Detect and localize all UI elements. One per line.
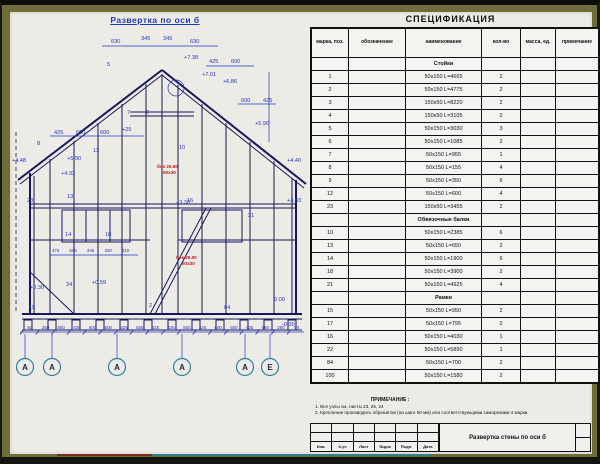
table-cell: 21 <box>311 279 349 292</box>
dim-label: 425 <box>263 98 272 104</box>
table-cell <box>556 292 600 305</box>
table-row: 1250х150 L=6004 <box>311 188 599 201</box>
table-cell: Рамки <box>406 292 482 305</box>
dim-label: +4.48 <box>12 158 26 164</box>
title-block-cell <box>311 424 332 433</box>
table-cell: 4 <box>311 110 349 123</box>
table-cell <box>349 201 406 214</box>
svg-text:А: А <box>49 363 55 372</box>
table-row: 750х150 L=9551 <box>311 149 599 162</box>
table-cell: 17 <box>311 318 349 331</box>
col-header-pos: марка, поз. <box>311 28 349 58</box>
table-cell: 8 <box>311 162 349 175</box>
table-cell: 2 <box>482 266 521 279</box>
table-cell: 50х150 L=155 <box>406 162 482 175</box>
dim-label: 84 <box>224 305 230 311</box>
table-row: 1350х150 L=6502 <box>311 240 599 253</box>
table-row: 8450х150 L=7002 <box>311 357 599 370</box>
title-block-cell <box>396 424 417 433</box>
table-cell: 50х150 L=4030 <box>406 331 482 344</box>
table-cell <box>556 266 600 279</box>
spec-table: марка, поз. обозначение наименование кол… <box>310 27 600 384</box>
dim-label: 600 <box>231 59 240 65</box>
dim-label: 0.00 <box>274 297 285 303</box>
dim-label: 320 <box>105 248 113 253</box>
table-cell: 7 <box>311 149 349 162</box>
dim-label: +5.90 <box>255 121 269 127</box>
table-cell: 2 <box>482 305 521 318</box>
dim-label: 425 <box>167 325 175 330</box>
table-cell: 6 <box>311 136 349 149</box>
table-cell <box>311 292 349 305</box>
table-cell: 16 <box>311 331 349 344</box>
note-line: 2. Крепление производить обрешётки (на ш… <box>315 410 591 415</box>
table-cell: 6 <box>482 253 521 266</box>
table-cell: 9 <box>311 175 349 188</box>
table-row: 1550х150 L=9502 <box>311 305 599 318</box>
dim-label: +7.38 <box>184 55 198 61</box>
notes-block: ПРИМЕЧАНИЕ : 1. Все узлы см. листы 23, 2… <box>315 397 591 415</box>
dim-label: 550 <box>183 325 191 330</box>
table-cell <box>556 188 600 201</box>
title-block-label: Подп. <box>396 442 417 451</box>
col-header-qty: кол-во <box>482 28 521 58</box>
dim-label: 600 <box>241 98 250 104</box>
table-cell: 50х150 L=4925 <box>406 279 482 292</box>
dim-label: +0.30 <box>30 285 44 291</box>
table-cell: 3 <box>311 97 349 110</box>
table-cell: 2 <box>482 84 521 97</box>
title-block-cell <box>375 424 396 433</box>
dim-label: 600 <box>100 130 109 136</box>
table-cell: 12 <box>311 188 349 201</box>
table-cell <box>349 266 406 279</box>
dim-label: +0.59 <box>92 280 106 286</box>
title-block-cell <box>354 424 375 433</box>
dim-label: 600 <box>76 130 85 136</box>
title-block-cell <box>311 433 332 442</box>
dim-label: 630 <box>190 39 199 45</box>
table-cell <box>556 58 600 71</box>
dim-label: 425 <box>54 130 63 136</box>
table-cell <box>556 227 600 240</box>
table-cell: 50х150 L=350 <box>406 175 482 188</box>
dim-label: 425 <box>199 325 207 330</box>
table-cell <box>349 344 406 357</box>
table-cell: 50х150 L=4775 <box>406 84 482 97</box>
table-cell: 84 <box>311 357 349 370</box>
table-cell: Обвязочные балки <box>406 214 482 227</box>
table-cell <box>556 331 600 344</box>
dim-label: 600 <box>105 325 113 330</box>
table-row: 23150х50 L=34552 <box>311 201 599 214</box>
table-cell: 2 <box>482 240 521 253</box>
table-cell <box>521 331 556 344</box>
dim-label: 550 <box>136 325 144 330</box>
dim-label: 425 <box>152 325 160 330</box>
table-row: 10050х150 L=15802 <box>311 370 599 384</box>
dim-label: 5 <box>107 62 110 68</box>
title-block-cell <box>418 433 439 442</box>
table-cell <box>521 292 556 305</box>
table-cell <box>349 97 406 110</box>
table-cell <box>311 58 349 71</box>
spec-title: СПЕЦИФИКАЦИЯ <box>310 14 591 24</box>
axis-marker: А <box>17 334 34 376</box>
table-cell <box>556 84 600 97</box>
table-cell <box>349 136 406 149</box>
table-cell: 4 <box>482 162 521 175</box>
svg-text:А: А <box>179 363 185 372</box>
table-row: 2150х150 L=49254 <box>311 279 599 292</box>
table-cell <box>556 253 600 266</box>
dim-label: 14 <box>65 232 71 238</box>
note-line: 1. Все узлы см. листы 23, 25, 24 <box>315 404 591 409</box>
red-annotation: 50х30 <box>163 170 176 175</box>
table-row: 650х150 L=10852 <box>311 136 599 149</box>
table-cell <box>521 240 556 253</box>
table-cell: 50х150 L=700 <box>406 357 482 370</box>
table-row: 250х150 L=47752 <box>311 84 599 97</box>
table-cell <box>556 357 600 370</box>
table-cell: 2 <box>482 201 521 214</box>
title-block-label: Изм. <box>311 442 332 451</box>
dim-label: 34 <box>66 282 72 288</box>
table-row: 2250х150 L=58901 <box>311 344 599 357</box>
window-frame: Развертка по оси б <box>0 0 600 464</box>
table-cell <box>482 292 521 305</box>
title-block-cell <box>332 433 353 442</box>
col-header-mass: масса, ед. <box>521 28 556 58</box>
table-cell <box>521 71 556 84</box>
table-cell: 50х150 L=2385 <box>406 227 482 240</box>
table-cell <box>521 305 556 318</box>
dim-label: 50 <box>27 325 32 330</box>
table-cell: 2 <box>482 370 521 384</box>
axis-marker: А <box>44 334 61 376</box>
dim-label: +4.40 <box>287 158 301 164</box>
dim-label: +4.32 <box>61 171 75 177</box>
table-cell <box>349 175 406 188</box>
notes-heading: ПРИМЕЧАНИЕ : <box>315 397 465 403</box>
dim-label: 600 <box>215 325 223 330</box>
col-header-note: примечание <box>556 28 600 58</box>
table-cell <box>482 58 521 71</box>
axis-markers: АААААЕ <box>17 334 279 376</box>
table-cell <box>521 370 556 384</box>
table-cell: 2 <box>482 357 521 370</box>
table-cell <box>349 331 406 344</box>
table-cell <box>556 123 600 136</box>
table-cell <box>556 162 600 175</box>
table-cell <box>521 201 556 214</box>
col-header-designation: обозначение <box>349 28 406 58</box>
title-block-grid: Изм. К.уч Лист №док Подп. Дата <box>311 424 440 451</box>
table-cell: 13 <box>311 240 349 253</box>
spec-header-row: марка, поз. обозначение наименование кол… <box>311 28 599 58</box>
table-cell <box>521 123 556 136</box>
table-cell: 150х50 L=3455 <box>406 201 482 214</box>
table-cell <box>521 357 556 370</box>
table-cell: 100 <box>311 370 349 384</box>
table-cell: 50х150 L=4665 <box>406 71 482 84</box>
dim-label: 13 <box>67 194 73 200</box>
table-cell <box>521 266 556 279</box>
dim-label: 12 <box>93 148 99 154</box>
table-cell: 50х150 L=955 <box>406 149 482 162</box>
table-cell <box>521 214 556 227</box>
table-row: 1850х150 L=39002 <box>311 266 599 279</box>
table-cell <box>521 84 556 97</box>
table-cell: 6 <box>482 175 521 188</box>
table-cell: 4 <box>482 279 521 292</box>
axis-marker: Е <box>262 334 279 376</box>
dim-label: 600 <box>89 325 97 330</box>
table-cell <box>556 149 600 162</box>
table-cell: 2 <box>482 110 521 123</box>
dim-label: 425 <box>120 325 128 330</box>
table-cell: 1 <box>482 331 521 344</box>
table-cell: 1 <box>482 149 521 162</box>
frame-structure <box>16 70 306 330</box>
title-block-cell <box>396 433 417 442</box>
table-cell <box>349 292 406 305</box>
dim-label: 425 <box>246 325 254 330</box>
table-cell <box>556 201 600 214</box>
table-cell <box>521 175 556 188</box>
table-cell: 50х150 L=650 <box>406 240 482 253</box>
dim-label: 7 <box>127 110 130 116</box>
table-cell: 2 <box>482 318 521 331</box>
dim-label: +6.86 <box>223 79 237 85</box>
section-row: Рамки <box>311 292 599 305</box>
table-cell: 2 <box>482 71 521 84</box>
dim-label: +25 <box>122 127 132 133</box>
section-row: Стойки <box>311 58 599 71</box>
table-cell <box>349 110 406 123</box>
table-cell <box>349 305 406 318</box>
table-cell: 50х150 L=795 <box>406 318 482 331</box>
table-cell: 15 <box>311 305 349 318</box>
table-cell <box>556 175 600 188</box>
table-cell <box>349 253 406 266</box>
table-cell: 2 <box>311 84 349 97</box>
title-block-right <box>575 424 590 451</box>
table-cell: 50х150 L=1900 <box>406 253 482 266</box>
table-cell <box>556 240 600 253</box>
dim-label: 475 <box>52 248 60 253</box>
table-cell: 2 <box>482 97 521 110</box>
table-cell <box>349 162 406 175</box>
table-cell <box>521 253 556 266</box>
table-cell: 50х150 L=1580 <box>406 370 482 384</box>
title-block-cell <box>332 424 353 433</box>
table-cell: 150х50 L=3105 <box>406 110 482 123</box>
dim-label: +5.90 <box>67 156 81 162</box>
table-cell: 1 <box>482 344 521 357</box>
dim-label: 590 <box>70 248 78 253</box>
table-cell <box>556 370 600 384</box>
dim-label: 345 <box>141 36 150 42</box>
title-block-cell <box>375 433 396 442</box>
red-annotation: бок 25.00 <box>176 254 197 260</box>
table-cell: 150х50 L=8220 <box>406 97 482 110</box>
table-row: 550х150 L=30303 <box>311 123 599 136</box>
table-cell <box>349 84 406 97</box>
table-cell <box>556 214 600 227</box>
table-cell: 6 <box>482 227 521 240</box>
table-row: 1450х150 L=19006 <box>311 253 599 266</box>
drawing-sheet: Развертка по оси б <box>10 12 592 454</box>
title-block-cell <box>418 424 439 433</box>
table-cell <box>349 370 406 384</box>
dim-label: 250 <box>277 325 285 330</box>
table-cell <box>521 162 556 175</box>
table-cell <box>556 110 600 123</box>
dim-label: 16 <box>187 198 193 204</box>
table-cell <box>521 227 556 240</box>
table-row: 1050х150 L=23856 <box>311 227 599 240</box>
table-row: 850х150 L=1554 <box>311 162 599 175</box>
table-cell <box>349 214 406 227</box>
table-cell <box>349 227 406 240</box>
dim-label: 345 <box>163 36 172 42</box>
table-cell: 50х150 L=1085 <box>406 136 482 149</box>
dim-label: 550 <box>262 325 270 330</box>
table-cell <box>521 318 556 331</box>
svg-text:А: А <box>242 363 248 372</box>
title-block-label: №док <box>375 442 396 451</box>
table-cell <box>349 279 406 292</box>
dim-label: 50 <box>294 325 299 330</box>
table-cell <box>349 58 406 71</box>
table-cell <box>311 214 349 227</box>
table-cell: 18 <box>311 266 349 279</box>
dimension-labels: 6303453456305+7.38425600+7.01+6.86600425… <box>12 36 301 335</box>
dim-label: 23 <box>27 198 33 204</box>
table-cell: 14 <box>311 253 349 266</box>
table-cell: 2 <box>482 136 521 149</box>
axis-marker: А <box>237 334 254 376</box>
title-block-cell <box>354 433 375 442</box>
dim-label: 630 <box>111 39 120 45</box>
table-cell <box>556 279 600 292</box>
title-block-label: Лист <box>354 442 375 451</box>
table-row: 3150х50 L=82202 <box>311 97 599 110</box>
dim-label: 2 <box>149 303 152 309</box>
dim-label: 425 <box>73 325 81 330</box>
title-block-label: Дата <box>418 442 439 451</box>
table-cell: Стойки <box>406 58 482 71</box>
table-cell: 3 <box>482 123 521 136</box>
table-cell <box>521 188 556 201</box>
table-cell: 10 <box>311 227 349 240</box>
document-title: Развертка стены по оси б <box>440 424 575 451</box>
table-cell <box>482 214 521 227</box>
table-cell <box>556 71 600 84</box>
table-cell <box>349 149 406 162</box>
dim-label: 8 <box>37 141 40 147</box>
table-cell <box>521 110 556 123</box>
table-cell: 4 <box>482 188 521 201</box>
table-cell <box>349 123 406 136</box>
table-cell <box>521 58 556 71</box>
axis-marker: А <box>174 334 191 376</box>
dim-label: 550 <box>58 325 66 330</box>
title-block: Изм. К.уч Лист №док Подп. Дата Развертка… <box>310 423 591 452</box>
table-cell <box>556 318 600 331</box>
table-cell <box>521 97 556 110</box>
table-cell <box>556 97 600 110</box>
table-row: 150х150 L=46652 <box>311 71 599 84</box>
dim-label: 310 <box>122 248 130 253</box>
table-cell <box>556 136 600 149</box>
dim-label: 15 <box>29 305 35 311</box>
table-cell: 50х150 L=3900 <box>406 266 482 279</box>
table-cell <box>521 149 556 162</box>
section-row: Обвязочные балки <box>311 214 599 227</box>
dim-label: +3.83 <box>287 198 301 204</box>
table-cell: 23 <box>311 201 349 214</box>
svg-text:А: А <box>114 363 120 372</box>
table-cell: 50х150 L=600 <box>406 188 482 201</box>
table-cell <box>349 188 406 201</box>
dim-label: 21 <box>248 213 254 219</box>
table-cell <box>349 318 406 331</box>
table-cell <box>349 240 406 253</box>
dim-label: +7.01 <box>202 72 216 78</box>
table-row: 1750х150 L=7952 <box>311 318 599 331</box>
table-cell <box>349 357 406 370</box>
table-cell <box>556 344 600 357</box>
dim-label: 2 <box>146 110 149 116</box>
svg-text:А: А <box>22 363 28 372</box>
table-cell: 50х150 L=5890 <box>406 344 482 357</box>
svg-text:Е: Е <box>267 363 273 372</box>
red-annotation: 50х30 <box>182 261 195 266</box>
table-row: 4150х50 L=31052 <box>311 110 599 123</box>
drawing-svg: 6303453456305+7.38425600+7.01+6.86600425… <box>10 12 310 454</box>
col-header-name: наименование <box>406 28 482 58</box>
table-cell <box>521 136 556 149</box>
table-row: 950х150 L=3506 <box>311 175 599 188</box>
red-annotation: бок 25.60 <box>157 163 178 169</box>
dim-label: 18 <box>105 232 111 238</box>
dim-label: 345 <box>87 248 95 253</box>
table-cell <box>521 279 556 292</box>
table-cell: 22 <box>311 344 349 357</box>
table-cell: 1 <box>311 71 349 84</box>
dim-label: 425 <box>209 59 218 65</box>
axis-marker: А <box>109 334 126 376</box>
table-cell: 50х150 L=3030 <box>406 123 482 136</box>
table-cell: 5 <box>311 123 349 136</box>
dim-label: 10 <box>179 145 185 151</box>
dim-label: 250 <box>42 325 50 330</box>
title-block-label: К.уч <box>332 442 353 451</box>
dim-label: 600 <box>230 325 238 330</box>
table-row: 1650х150 L=40301 <box>311 331 599 344</box>
table-cell <box>521 344 556 357</box>
table-cell <box>349 71 406 84</box>
spec-table-body: Стойки150х150 L=46652250х150 L=477523150… <box>311 58 599 384</box>
table-cell: 50х150 L=950 <box>406 305 482 318</box>
table-cell <box>556 305 600 318</box>
